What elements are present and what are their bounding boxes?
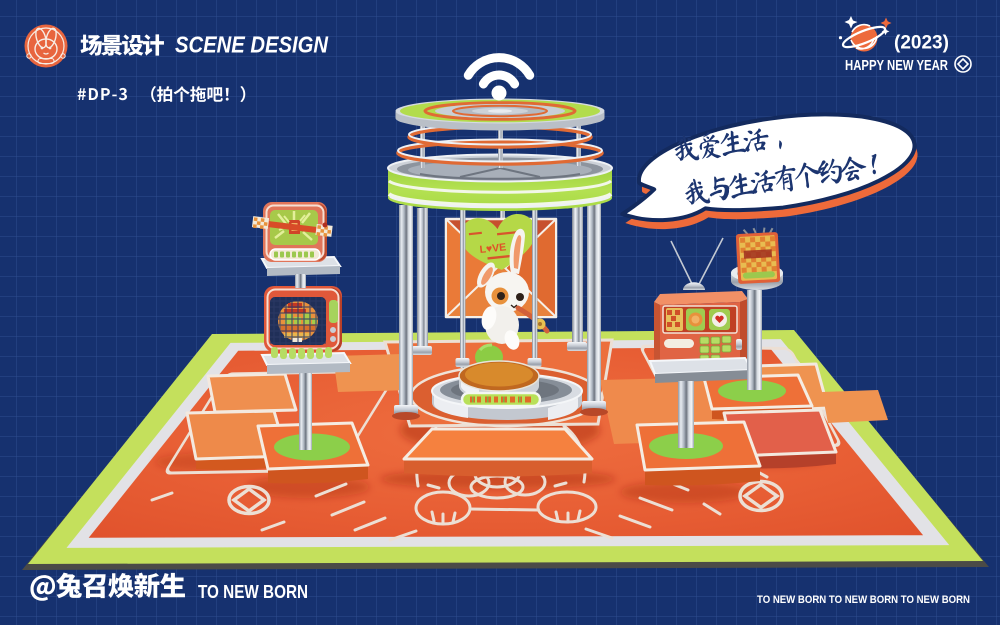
svg-text:TO NEW BORN: TO NEW BORN	[198, 582, 308, 602]
svg-text:(2023): (2023)	[894, 33, 949, 54]
svg-text:SCENE DESIGN: SCENE DESIGN	[175, 32, 328, 58]
svg-text:HAPPY NEW YEAR: HAPPY NEW YEAR	[845, 58, 948, 74]
svg-text:TO NEW BORN TO NEW BORN TO NEW: TO NEW BORN TO NEW BORN TO NEW BORN	[757, 594, 970, 606]
